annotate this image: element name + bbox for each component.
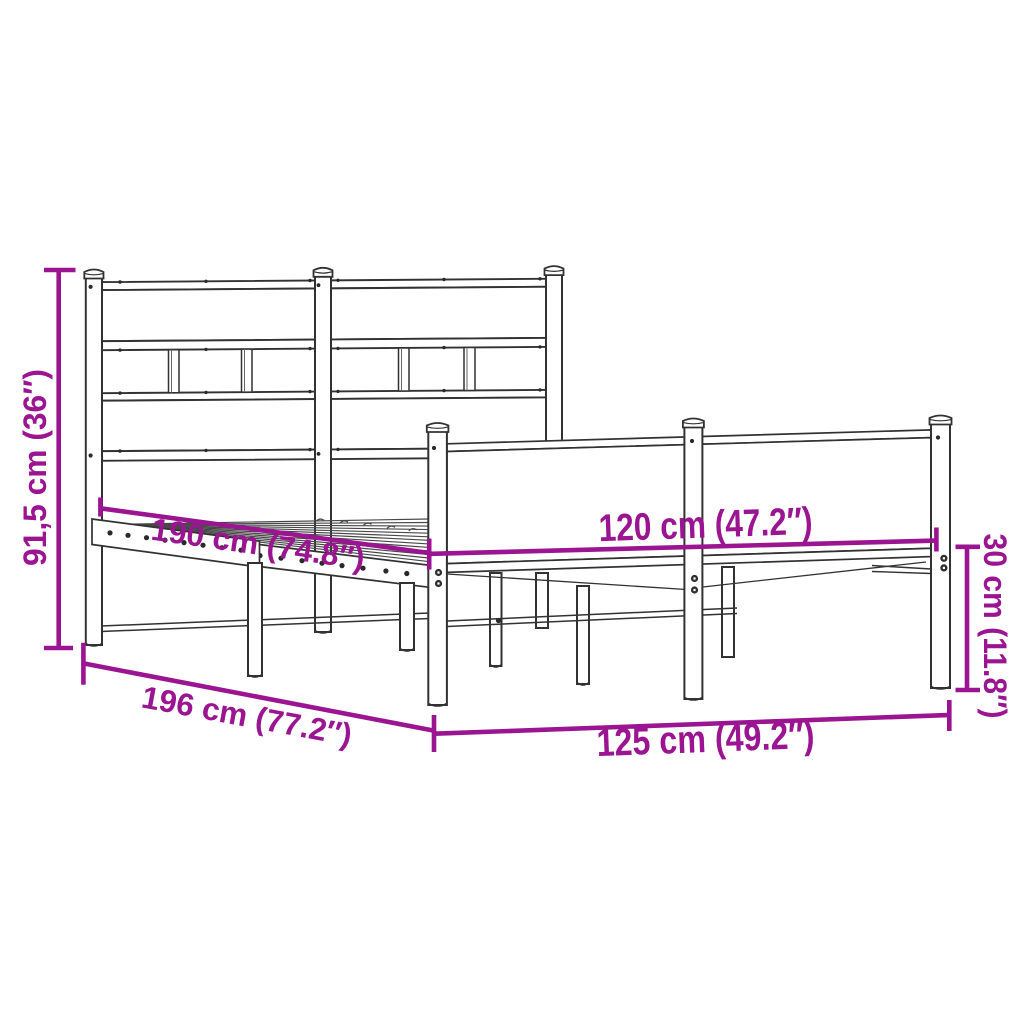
svg-text:91,5 cm (36″): 91,5 cm (36″) bbox=[17, 369, 53, 566]
svg-text:125 cm (49.2″): 125 cm (49.2″) bbox=[596, 714, 815, 765]
svg-text:30 cm (11.8″): 30 cm (11.8″) bbox=[977, 534, 1013, 719]
svg-text:120 cm (47.2″): 120 cm (47.2″) bbox=[598, 500, 813, 550]
